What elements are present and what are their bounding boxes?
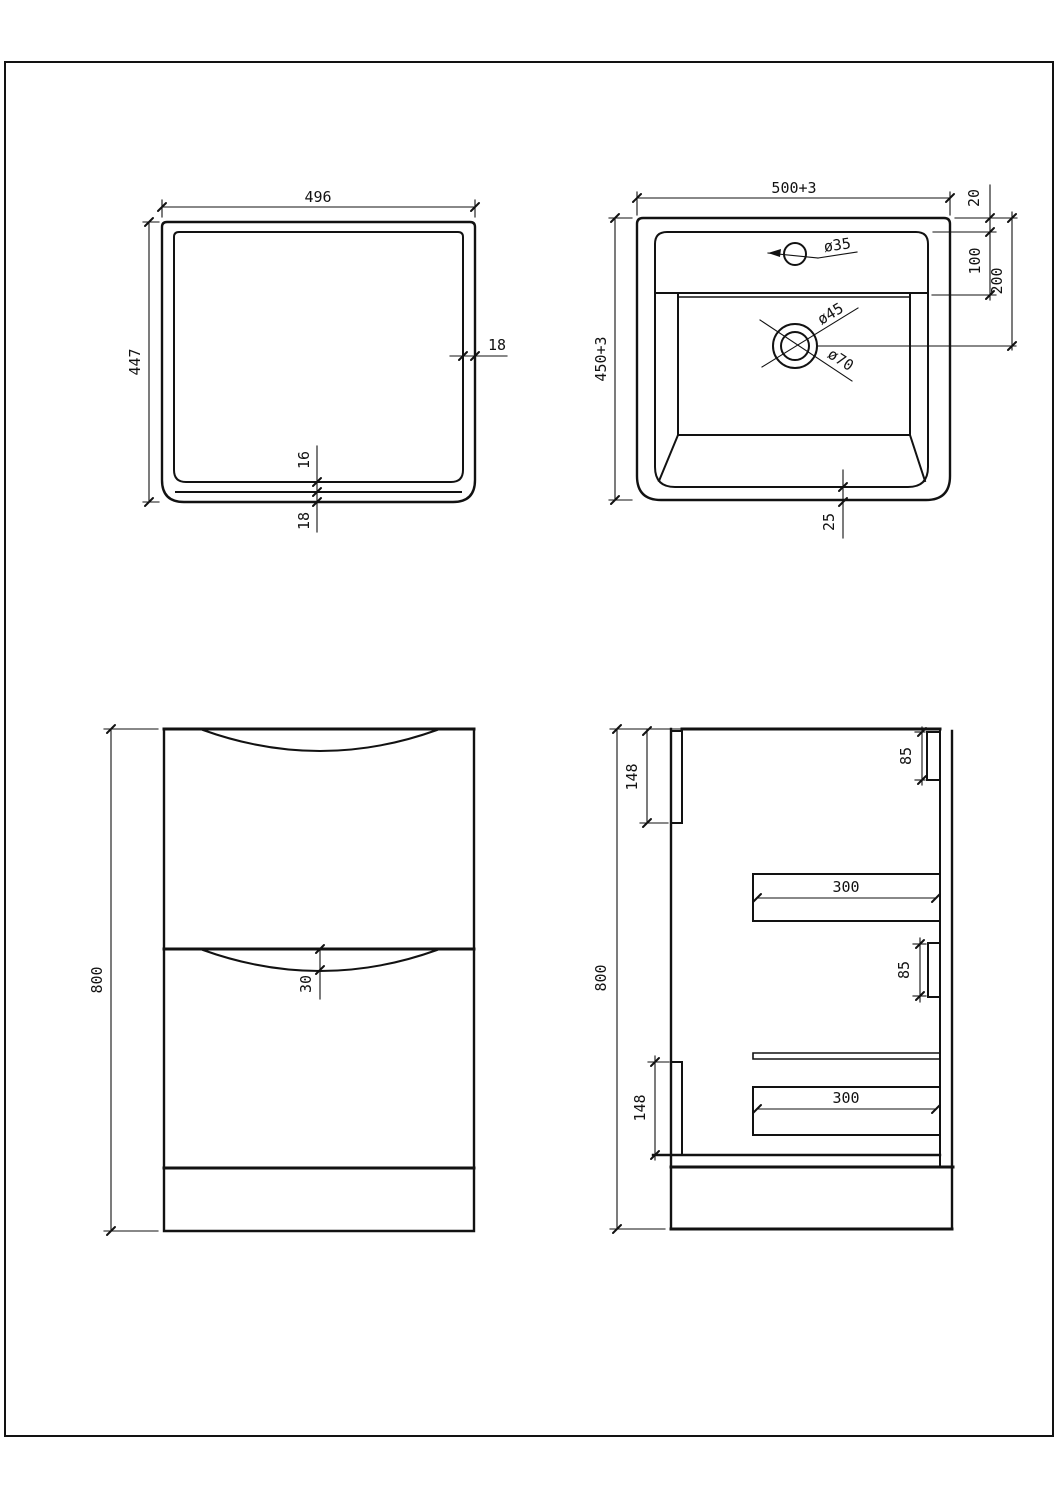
- mid-front-rail: [928, 943, 940, 997]
- dim-drain-flange-diameter-label: ø70: [824, 345, 857, 375]
- dim-bottom-back-rail-label: 148: [631, 1094, 649, 1121]
- dim-basin-width-label: 500+3: [771, 179, 816, 197]
- dim-upper-drawer-length-label: 300: [832, 878, 859, 896]
- dim-basin-base-clearance-label: 25: [820, 513, 838, 531]
- view-side: 800 148 85 300 85 300 148: [592, 725, 953, 1233]
- side-dimensions: [610, 725, 940, 1233]
- lower-drawer-rail: [753, 1053, 940, 1059]
- top-front-rail: [927, 732, 940, 780]
- front-dimensions: [104, 725, 324, 1235]
- dim-cabinet-width-label: 496: [304, 188, 331, 206]
- dim-top-back-rail-label: 148: [623, 763, 641, 790]
- technical-drawing-canvas: 496 447 18 16 18: [0, 0, 1058, 1497]
- drawer1-handle-curve: [203, 730, 437, 751]
- dim-side-height-label: 800: [592, 964, 610, 991]
- view-cabinet-top: 496 447 18 16 18: [126, 188, 507, 532]
- dim-front-height-label: 800: [88, 966, 106, 993]
- dim-lower-drawer-length-label: 300: [832, 1089, 859, 1107]
- dim-drain-diameter-label: ø45: [814, 299, 846, 328]
- dim-cabinet-bottom-outer-label: 18: [295, 512, 313, 530]
- dim-basin-deck-label: 100: [966, 247, 984, 274]
- basin-dimensions: [609, 185, 1017, 538]
- dim-cabinet-wall-label: 18: [488, 336, 506, 354]
- dim-basin-rim-label: 20: [965, 189, 983, 207]
- cabinet-top-outline: [162, 222, 475, 502]
- top-back-rail: [671, 731, 682, 823]
- drain-flange: [773, 324, 817, 368]
- dim-basin-drain-offset-label: 200: [988, 267, 1006, 294]
- drawing-page: 496 447 18 16 18: [0, 0, 1058, 1497]
- dim-cabinet-height-label: 447: [126, 348, 144, 375]
- dim-top-front-rail-label: 85: [897, 747, 915, 765]
- front-outline: [164, 729, 474, 1231]
- tap-hole: [784, 243, 806, 265]
- dim-cabinet-bottom-inner-label: 16: [295, 451, 313, 469]
- basin-outline: [637, 218, 950, 500]
- dim-mid-front-rail-label: 85: [895, 961, 913, 979]
- dim-handle-recess-label: 30: [297, 975, 315, 993]
- bottom-back-rail: [671, 1062, 682, 1155]
- dim-basin-depth-label: 450+3: [592, 336, 610, 381]
- view-front: 800 30: [88, 725, 474, 1235]
- dim-tap-hole-diameter-label: ø35: [823, 234, 852, 256]
- view-basin-top: 500+3 450+3 20 100 200 ø35 ø45 ø70 25: [592, 179, 1017, 538]
